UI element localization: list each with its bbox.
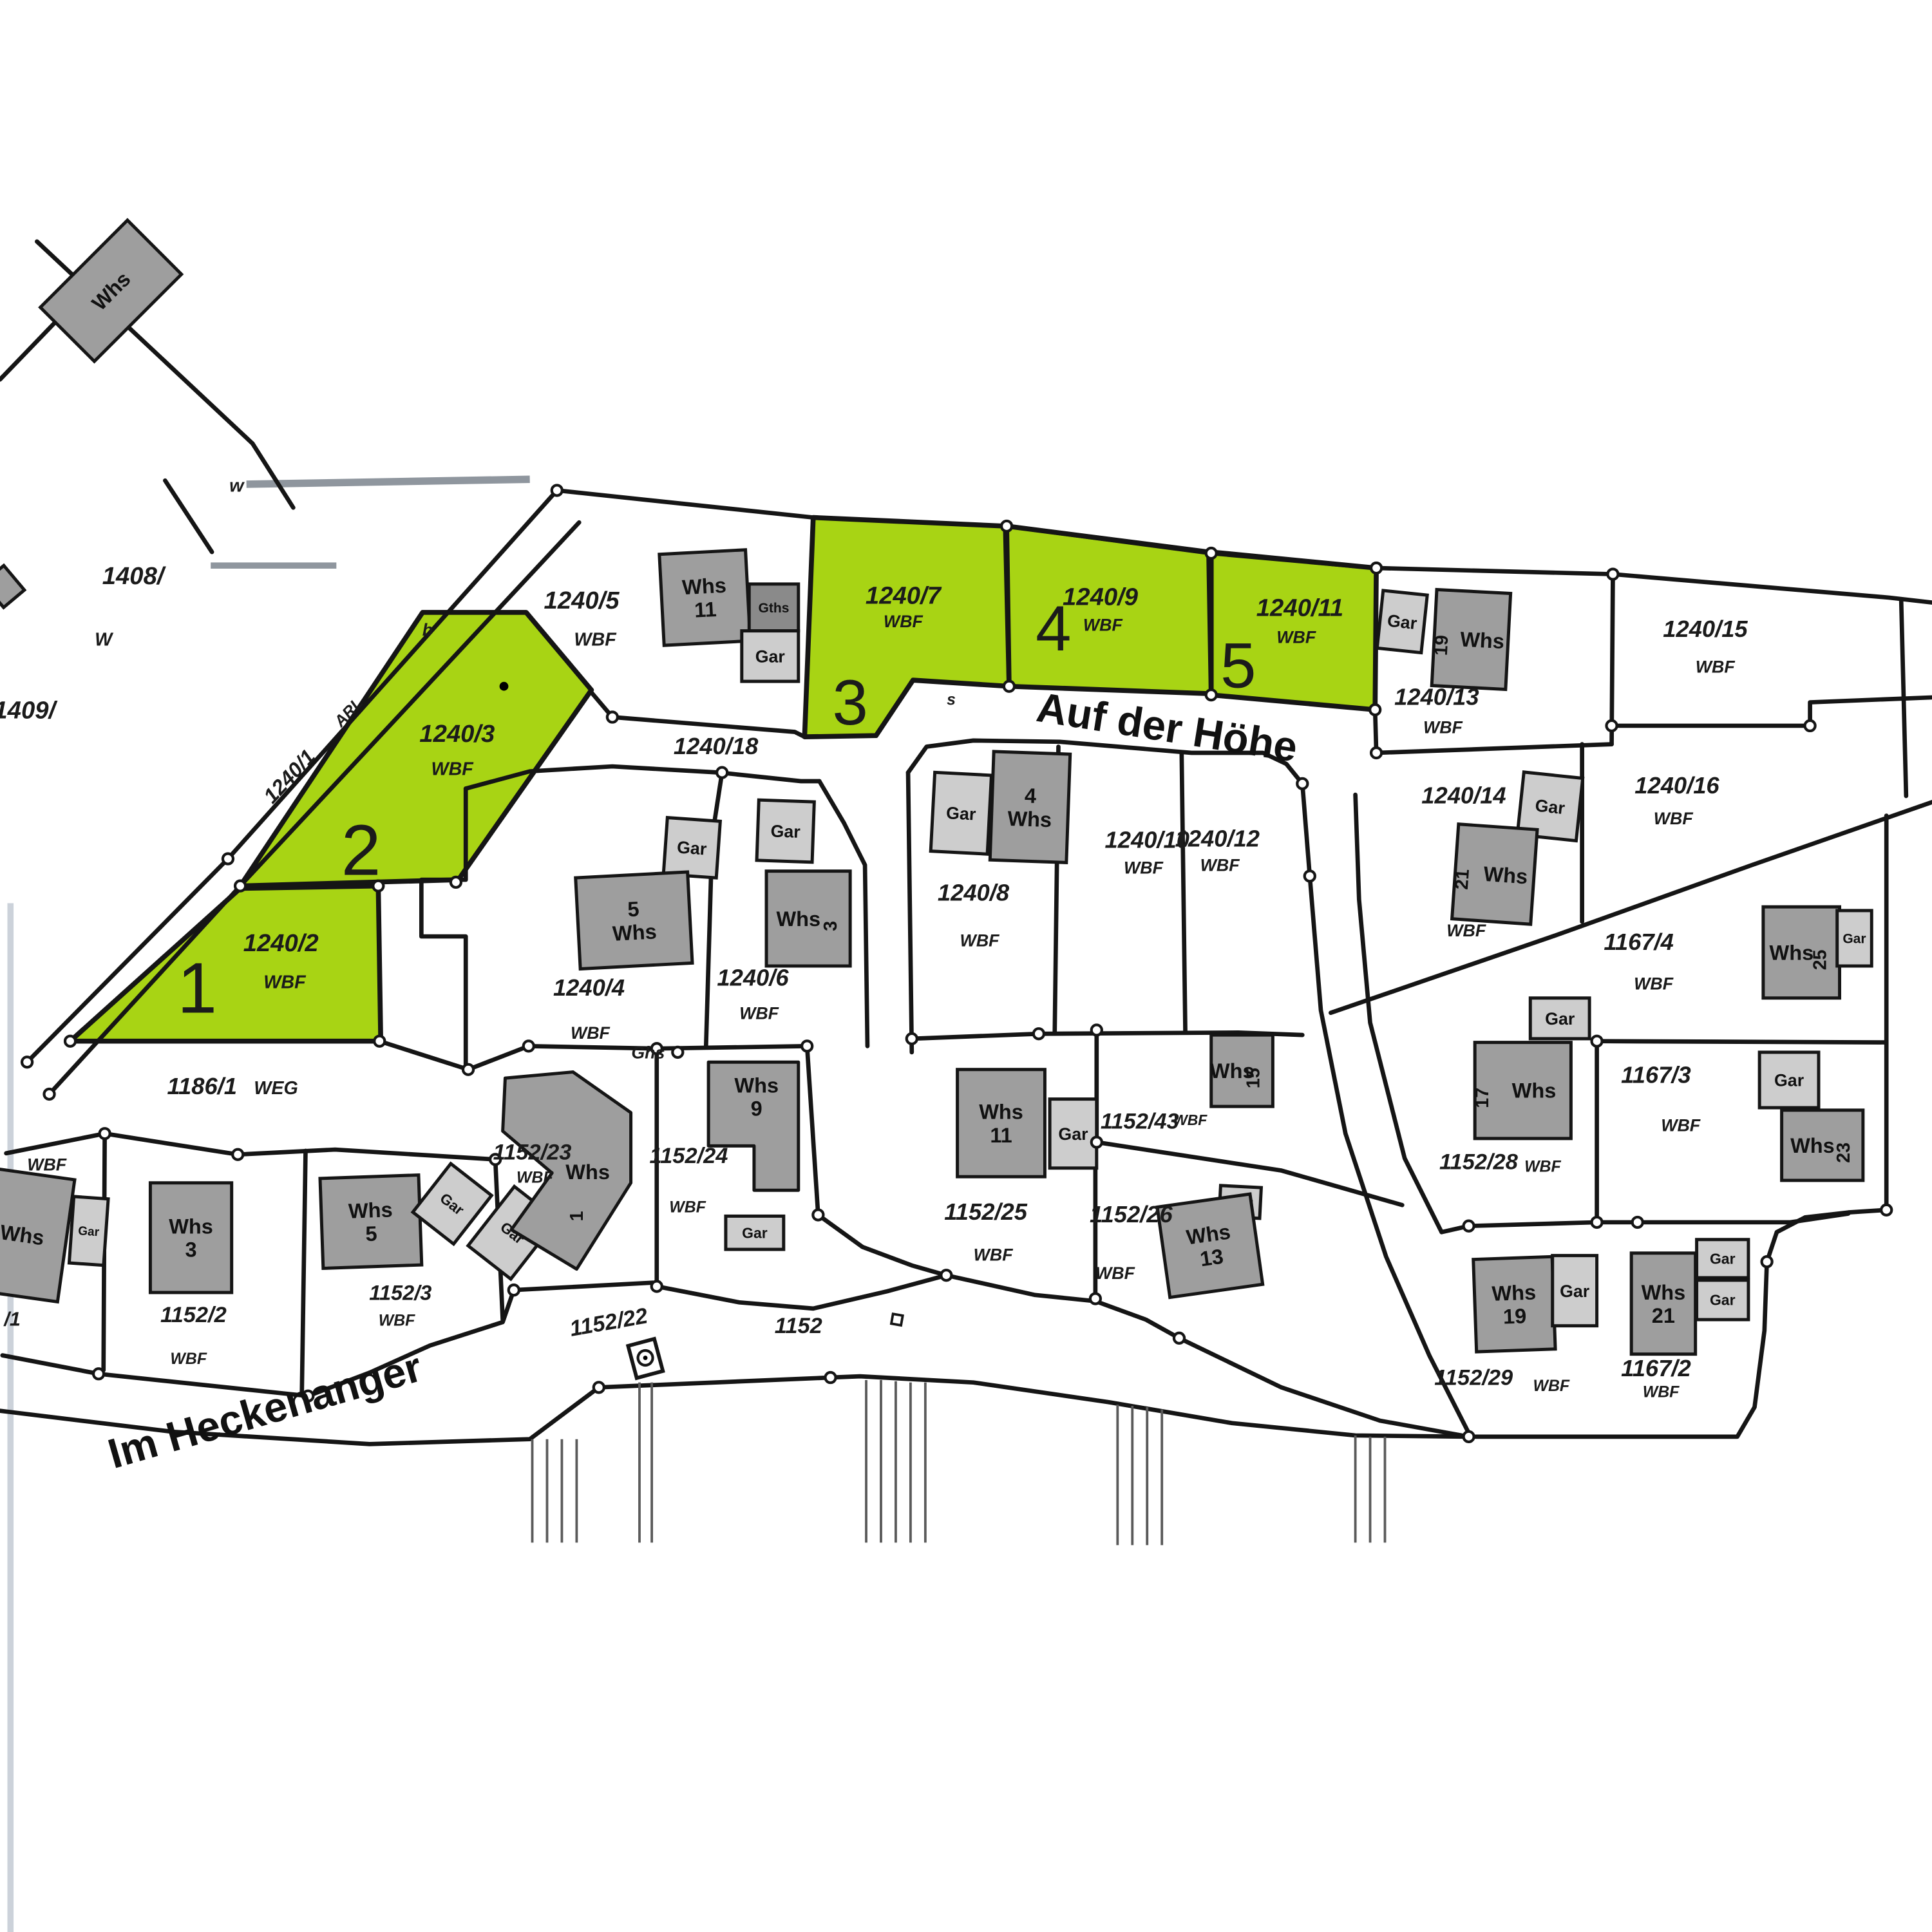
boundary-line-y992 — [1469, 1214, 1848, 1226]
boundary-div-10-12 — [1182, 753, 1186, 1032]
parcel-label-1152-24-45: 1152/24 — [650, 1144, 728, 1168]
whs-15-house-number: 15 — [1243, 1068, 1264, 1088]
whs-19-south-label: Whs — [1492, 1281, 1537, 1305]
boundary-node-15 — [65, 1036, 75, 1046]
plot-2: 21240/3WBF — [240, 612, 591, 891]
boundary-v-660 — [807, 1046, 818, 1215]
boundary-node-27 — [509, 1285, 519, 1295]
boundary-node-12 — [451, 877, 461, 887]
parcel-label-WBF-44: WBF — [516, 1169, 553, 1187]
parcel-label-1240-16-25: 1240/16 — [1634, 772, 1719, 799]
parcel-label-1186-1-7: 1186/1 — [167, 1073, 237, 1099]
whs-23-house-number: 23 — [1833, 1142, 1854, 1163]
parcel-label-Ghs-55: Ghs — [631, 1043, 665, 1062]
plot-1-use-code: WBF — [263, 972, 307, 992]
gar-1240-14-label: Gar — [1534, 796, 1566, 819]
parcel-label-1240-6-11: 1240/6 — [717, 965, 789, 991]
plot-2-area[interactable] — [240, 612, 591, 886]
gar-1152-28: Gar — [1530, 998, 1589, 1039]
boundary-node-49 — [717, 768, 727, 778]
point-marker — [500, 682, 509, 691]
map-edge-strip — [7, 903, 14, 1932]
boundary-node-36 — [1174, 1333, 1184, 1343]
boundary-node-38 — [1592, 1217, 1602, 1227]
boundary-node-42 — [1762, 1256, 1772, 1267]
boundary-node-30 — [100, 1128, 110, 1139]
gray-road-bar-0 — [247, 479, 530, 484]
whs-5-south-label: Whs — [348, 1198, 393, 1222]
parcel-label-WBF-53: WBF — [27, 1155, 67, 1175]
gar-1152-28-label: Gar — [1545, 1009, 1575, 1028]
boundary-node-6 — [1206, 690, 1217, 700]
boundary-node-47 — [1305, 871, 1315, 881]
parcel-label-1240-18-6: 1240/18 — [674, 733, 759, 759]
boundary-node-35 — [941, 1270, 951, 1280]
parcel-label-1152-3-51: 1152/3 — [369, 1281, 431, 1304]
whs-21-north-house-number: 21 — [1452, 868, 1473, 890]
whs-21-south-label: 21 — [1652, 1304, 1675, 1327]
boundary-node-20 — [672, 1047, 683, 1057]
boundary-node-41 — [1881, 1205, 1891, 1215]
whs-5-center-label: 5 — [627, 897, 639, 921]
boundary-node-22 — [1034, 1028, 1044, 1039]
whs-4: 4Whs — [990, 752, 1070, 862]
whs-17-house-number: 17 — [1472, 1088, 1493, 1108]
parcel-label-WBF-30: WBF — [1661, 1115, 1701, 1135]
boundary-node-17 — [463, 1065, 473, 1075]
whs-left-edge: Whs — [0, 1168, 75, 1302]
parcel-label-1152-22-47: 1152/22 — [568, 1303, 650, 1341]
whs-19-north-house-number: 19 — [1431, 634, 1453, 656]
gar-1152-25-label: Gar — [1058, 1124, 1088, 1144]
whs-11-south-label: Whs — [979, 1100, 1023, 1123]
parcel-label-s-57: s — [947, 690, 956, 708]
plot-3: 31240/7WBF — [804, 518, 1009, 739]
boundary-node-34 — [1090, 1294, 1101, 1304]
boundary-parcel15-bottom — [1612, 697, 1932, 726]
gar-1152-29: Gar — [1553, 1256, 1597, 1326]
whs-15: Whs15 — [1210, 1035, 1273, 1106]
boundary-node-25 — [813, 1209, 823, 1220]
whs-3-south-label: 3 — [185, 1238, 197, 1262]
whs-11-south-label: 11 — [990, 1124, 1012, 1147]
boundary-node-43 — [1464, 1432, 1474, 1442]
plot-2-number: 2 — [341, 810, 381, 890]
whs-19-south-label: 19 — [1502, 1304, 1526, 1328]
boundary-node-11 — [223, 854, 233, 864]
whs-5-south: Whs5 — [320, 1175, 422, 1269]
boundary-node-37 — [1464, 1221, 1474, 1231]
parcel-label-W-2: W — [95, 630, 114, 650]
plot-4-parcel-id: 1240/9 — [1063, 583, 1139, 611]
parcel-label-1152-2-49: 1152/2 — [160, 1303, 227, 1327]
boundary-node-45 — [594, 1382, 604, 1392]
whs-3-center: Whs3 — [766, 871, 850, 966]
boundary-v-right-edge — [1901, 600, 1906, 796]
parcel-label-1152-48: 1152 — [775, 1314, 822, 1338]
gar-1167-2b: Gar — [1697, 1280, 1748, 1320]
parcel-label-1240-12-17: 1240/12 — [1175, 825, 1260, 851]
parcel-label-1240-15-23: 1240/15 — [1663, 616, 1748, 642]
whs-21-north: Whs21 — [1450, 824, 1537, 924]
boundary-node-10 — [607, 712, 618, 722]
boundary-node-50 — [22, 1057, 32, 1067]
plot-1-parcel-id: 1240/2 — [243, 929, 319, 957]
parcel-label-1152-28-39: 1152/28 — [1439, 1150, 1519, 1175]
gar-1167-2a: Gar — [1697, 1240, 1748, 1278]
whs-9: Whs9 — [708, 1062, 799, 1190]
gar-1240-13-label: Gar — [1387, 611, 1419, 634]
parcel-label-1240-5-4: 1240/5 — [544, 587, 620, 614]
gar-1167-2b-label: Gar — [1710, 1292, 1736, 1309]
whs-3-south-label: Whs — [169, 1215, 213, 1238]
boundary-node-24 — [907, 1034, 917, 1044]
boundary-node-5 — [1004, 681, 1014, 692]
boundary-node-39 — [1633, 1217, 1643, 1227]
gar-1240-5-label: Gar — [755, 647, 786, 666]
parcel-label-w-3: w — [229, 475, 245, 496]
parcel-label-WBF-26: WBF — [1654, 809, 1694, 828]
whs-5-center: 5Whs — [576, 872, 692, 969]
whs-5-south-label: 5 — [365, 1222, 377, 1246]
plot-3-use-code: WBF — [884, 612, 923, 631]
whs-11-north-label: 11 — [694, 598, 717, 622]
whs-4-label: Whs — [1007, 807, 1052, 831]
boundary-node-31 — [232, 1150, 243, 1160]
parcel-label-1240-13-19: 1240/13 — [1394, 683, 1479, 710]
parcel-label-WBF-16: WBF — [1124, 858, 1164, 878]
whs-fragment-left-edge-shape — [0, 565, 24, 607]
whs-23: Whs23 — [1782, 1110, 1863, 1180]
whs-21-south-label: Whs — [1642, 1281, 1686, 1304]
boundary-topleft-line-4 — [252, 444, 293, 507]
gar-1167-4-label: Gar — [1842, 932, 1866, 947]
street-name-im-heckenanger: Im Heckenanger — [103, 1343, 427, 1477]
whs-17-label: Whs — [1512, 1079, 1557, 1103]
whs-25: Whs25 — [1763, 907, 1840, 998]
boundary-node-4 — [1607, 569, 1618, 580]
boundary-v-1308 — [1612, 574, 1613, 744]
plot-1-number: 1 — [177, 949, 217, 1028]
parcel-label-1240-14-21: 1240/14 — [1421, 782, 1506, 808]
boundary-mid-bottom-line — [70, 1041, 807, 1070]
plot-5-number: 5 — [1220, 630, 1256, 702]
gar-1167-3-label: Gar — [1774, 1071, 1804, 1090]
boundary-node-8 — [1607, 721, 1617, 731]
parcel-label-1152-23-43: 1152/23 — [493, 1140, 572, 1164]
boundary-node-40 — [1592, 1036, 1602, 1046]
cadastral-map: 11240/2WBF21240/3WBF31240/7WBF41240/9WBF… — [0, 0, 1932, 1932]
parcel-label-1240-4-9: 1240/4 — [553, 974, 625, 1001]
parcel-label-1152-26-37: 1152/26 — [1090, 1201, 1173, 1227]
whs-9-label: 9 — [751, 1097, 762, 1121]
parcel-label-1152-43-33: 1152/43 — [1101, 1110, 1179, 1134]
plot-5-use-code: WBF — [1276, 628, 1316, 647]
parcel-label-1152-25-35: 1152/25 — [944, 1198, 1027, 1225]
parcel-label-1152-29-41: 1152/29 — [1434, 1366, 1513, 1390]
gar-1152-24: Gar — [726, 1216, 784, 1249]
boundary-long-diagonal — [1331, 802, 1932, 1013]
parcel-label-WBF-42: WBF — [1533, 1377, 1569, 1395]
plot-2-use-code: WBF — [431, 759, 475, 779]
parcel-label-WBF-38: WBF — [1095, 1264, 1135, 1283]
whs-3-center-label: Whs — [776, 907, 820, 931]
whs-fragment-left-edge — [0, 565, 24, 607]
gar-1240-6: Gar — [757, 800, 814, 862]
gar-1240-4: Gar — [663, 818, 720, 878]
parcel-label-1240-8-13: 1240/8 — [938, 880, 1010, 906]
whs-4-label: 4 — [1024, 784, 1036, 808]
boundary-node-0 — [552, 485, 562, 495]
whs-1-label: Whs — [565, 1160, 610, 1184]
parcel-label-WEG-8: WEG — [254, 1078, 298, 1099]
boundary-node-3 — [1371, 563, 1381, 573]
boundary-v-586 — [706, 773, 722, 1046]
parcel-label-b-56: b — [422, 620, 433, 639]
gar-1152-24-label: Gar — [742, 1224, 768, 1241]
parcel-label--1-54: /1 — [3, 1309, 21, 1331]
boundary-node-46 — [1297, 779, 1307, 789]
plot-5-parcel-id: 1240/11 — [1256, 594, 1343, 622]
boundary-parcel5-south — [591, 692, 804, 737]
whs-top-left: Whs — [41, 220, 182, 361]
parcel-label-1167-2-31: 1167/2 — [1621, 1355, 1690, 1381]
parcel-label-WBF-46: WBF — [669, 1198, 706, 1217]
whs-21-north-label: Whs — [1482, 862, 1528, 889]
parcel-label-WBF-10: WBF — [571, 1023, 611, 1043]
boundary-node-1 — [1001, 521, 1012, 531]
gar-1152-29-label: Gar — [1560, 1282, 1590, 1301]
parcel-label-WBF-22: WBF — [1446, 921, 1486, 940]
whs-25-house-number: 25 — [1810, 949, 1830, 970]
boundary-node-18 — [524, 1041, 534, 1051]
gar-1152-25: Gar — [1050, 1099, 1097, 1168]
hydrant-symbol — [628, 1339, 663, 1378]
plot-4-use-code: WBF — [1083, 616, 1123, 635]
parcel-label-WBF-20: WBF — [1423, 717, 1463, 737]
parcel-label-1167-3-29: 1167/3 — [1621, 1062, 1690, 1088]
whs-11-north: Whs11 — [659, 550, 750, 645]
parcel-label-WBF-34: WBF — [1173, 1112, 1207, 1128]
boundary-node-26 — [652, 1281, 662, 1291]
whs-21-south: Whs21 — [1631, 1253, 1695, 1354]
boundary-v-248 — [302, 1151, 306, 1392]
parcel-label-WBF-24: WBF — [1696, 658, 1736, 677]
boundary-parcel1167-3-top — [1597, 1041, 1887, 1043]
whs-9-label: Whs — [734, 1074, 779, 1097]
boundary-node-13 — [373, 881, 383, 891]
boundary-weg-bottom — [6, 1133, 496, 1159]
parcel-label-WBF-14: WBF — [960, 931, 1000, 950]
whs-17: Whs17 — [1472, 1043, 1571, 1139]
parcel-label-WBF-18: WBF — [1200, 856, 1240, 875]
whs-25-label: Whs — [1770, 941, 1814, 964]
boundary-node-21 — [802, 1041, 812, 1051]
boundary-node-16 — [374, 1036, 384, 1046]
parcel-label-WBF-52: WBF — [379, 1312, 415, 1330]
gar-1240-13: Gar — [1377, 591, 1427, 653]
plot-5: 51240/11WBF — [1211, 552, 1376, 710]
boundary-node-29 — [93, 1368, 104, 1379]
whs-13: Whs13 — [1157, 1194, 1263, 1297]
parcel-label-1409--1: 1409/ — [0, 696, 57, 724]
boundary-sideroad-west — [1302, 784, 1468, 1433]
parcel-label-1408--0: 1408/ — [102, 562, 166, 590]
square-marker — [891, 1314, 903, 1325]
whs-13-label: 13 — [1198, 1245, 1225, 1271]
boundary-node-7 — [1370, 705, 1380, 715]
gar-left-edge-label: Gar — [77, 1224, 100, 1239]
gar-1167-2a-label: Gar — [1710, 1251, 1736, 1267]
parcel-label-1167-4-27: 1167/4 — [1604, 929, 1673, 955]
gar-left-edge: Gar — [69, 1197, 108, 1265]
whs-19-north: Whs19 — [1429, 589, 1510, 689]
boundary-node-14 — [235, 881, 245, 891]
boundary-topleft-line-3 — [165, 480, 212, 552]
boundary-node-51 — [44, 1089, 54, 1099]
gar-1167-3: Gar — [1759, 1052, 1819, 1108]
parcel-label-WBF-28: WBF — [1634, 974, 1674, 993]
cadastral-map-page: 11240/2WBF21240/3WBF31240/7WBF41240/9WBF… — [0, 0, 1932, 1932]
boundary-node-23 — [1092, 1025, 1102, 1035]
whs-5-center-label: Whs — [612, 920, 657, 945]
gths-outbuilding-label: Gths — [759, 601, 790, 616]
plot-2-parcel-id: 1240/3 — [419, 720, 495, 748]
boundary-node-44 — [826, 1372, 836, 1383]
gar-1240-8-label: Gar — [945, 803, 976, 824]
parcel-label-WBF-36: WBF — [974, 1245, 1014, 1264]
boundary-node-33 — [1092, 1137, 1102, 1148]
whs-3-south: Whs3 — [150, 1183, 231, 1293]
whs-3-center-house-number: 3 — [820, 921, 841, 931]
boundary-v-739 — [908, 773, 912, 1052]
whs-19-south: Whs19 — [1473, 1256, 1555, 1352]
gar-1240-5: Gar — [742, 631, 799, 681]
gths-outbuilding: Gths — [749, 584, 799, 631]
parcel-label-WBF-40: WBF — [1524, 1158, 1561, 1176]
whs-23-label: Whs — [1790, 1134, 1835, 1157]
boundary-node-9 — [1805, 721, 1815, 731]
whs-11-south: Whs11 — [958, 1070, 1045, 1177]
boundary-node-48 — [1371, 748, 1381, 758]
whs-1-house-number: 1 — [567, 1211, 587, 1221]
parcel-label-WBF-50: WBF — [170, 1350, 207, 1368]
whs-11-north-label: Whs — [681, 574, 726, 600]
plot-3-number: 3 — [832, 667, 867, 739]
boundary-node-2 — [1206, 548, 1217, 558]
gar-1240-8: Gar — [931, 772, 991, 854]
gar-1167-4: Gar — [1837, 911, 1872, 966]
parcel-label-WBF-12: WBF — [739, 1003, 779, 1023]
plot-3-parcel-id: 1240/7 — [866, 582, 942, 609]
boundary-line-y611 — [1375, 710, 1611, 753]
parcel-label-WBF-32: WBF — [1643, 1383, 1680, 1401]
parcel-label-WBF-5: WBF — [574, 630, 617, 650]
gar-1240-6-label: Gar — [770, 821, 801, 842]
whs-19-north-label: Whs — [1459, 628, 1504, 654]
gar-1240-4-label: Gar — [676, 837, 708, 858]
